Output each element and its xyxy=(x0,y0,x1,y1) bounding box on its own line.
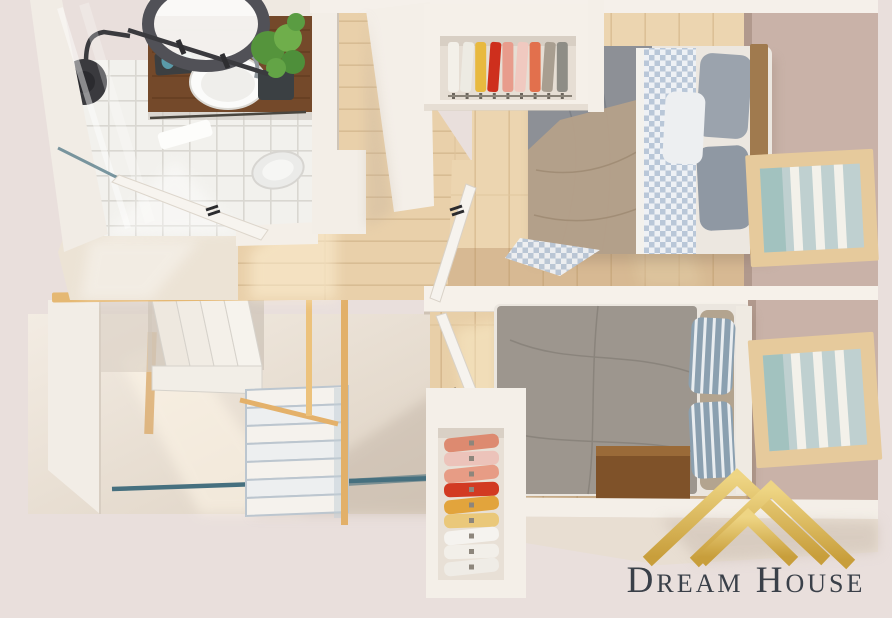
clothes-clip xyxy=(469,534,474,539)
clothes-item xyxy=(448,42,459,92)
stair-tread xyxy=(246,494,348,516)
wardrobe-bottom xyxy=(426,388,526,598)
clothes-item xyxy=(530,42,541,92)
pillow xyxy=(696,145,752,232)
floorplan-render: Dream House xyxy=(0,0,892,618)
balustrade-post xyxy=(306,294,312,416)
balustrade-post xyxy=(341,295,348,525)
window-glass-reflection xyxy=(760,168,786,253)
wardrobe-shadow xyxy=(424,104,594,111)
clothes-clip xyxy=(469,487,474,492)
clothes-clip xyxy=(469,472,474,477)
window-top xyxy=(745,149,879,268)
window-bottom xyxy=(748,332,883,468)
plant-foliage xyxy=(287,13,305,31)
nightstand-top xyxy=(596,446,690,456)
clothes-item xyxy=(557,42,568,92)
clothes-clip xyxy=(469,518,474,523)
striped-pillow xyxy=(688,401,736,479)
clothes-item xyxy=(502,42,513,92)
wall-stub xyxy=(588,0,604,112)
clothes-rack-top xyxy=(448,42,568,99)
clothes-clip xyxy=(469,549,474,554)
clothes-clip xyxy=(469,503,474,508)
plant-foliage xyxy=(266,58,286,78)
wardrobe-top xyxy=(424,0,604,112)
clothes-clip xyxy=(469,456,474,461)
bathroom-right-wall-niche xyxy=(312,150,366,234)
striped-pillow xyxy=(688,317,736,395)
floorplan-stage: Dream House xyxy=(0,0,892,618)
clothes-clip xyxy=(469,441,474,446)
logo-text: Dream House xyxy=(627,560,866,601)
headboard xyxy=(736,306,752,494)
clothes-clip xyxy=(469,565,474,570)
clothes-item xyxy=(475,42,486,92)
clothes-stack-bottom xyxy=(443,433,499,577)
pillow-white xyxy=(662,91,706,165)
stairwell-shadow xyxy=(100,302,152,372)
